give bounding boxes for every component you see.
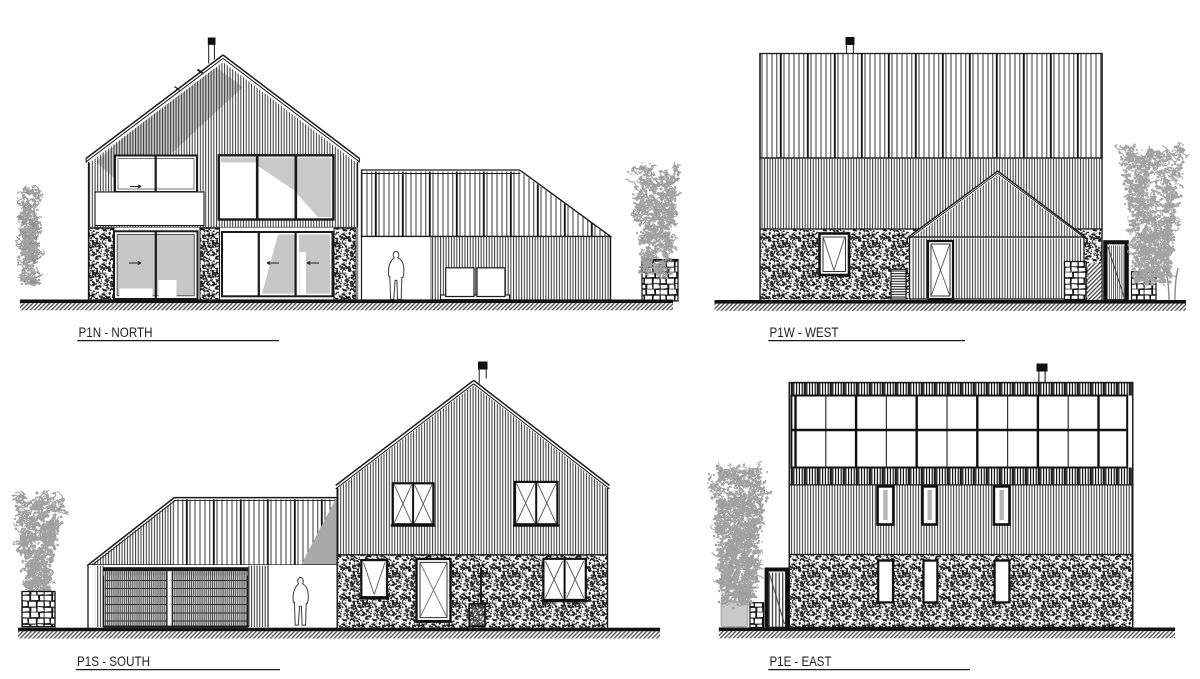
svg-text:P1S - SOUTH: P1S - SOUTH: [77, 654, 150, 669]
svg-text:P1W - WEST: P1W - WEST: [770, 325, 839, 340]
svg-text:P1E - EAST: P1E - EAST: [770, 654, 832, 669]
svg-text:P1N - NORTH: P1N - NORTH: [79, 325, 153, 340]
